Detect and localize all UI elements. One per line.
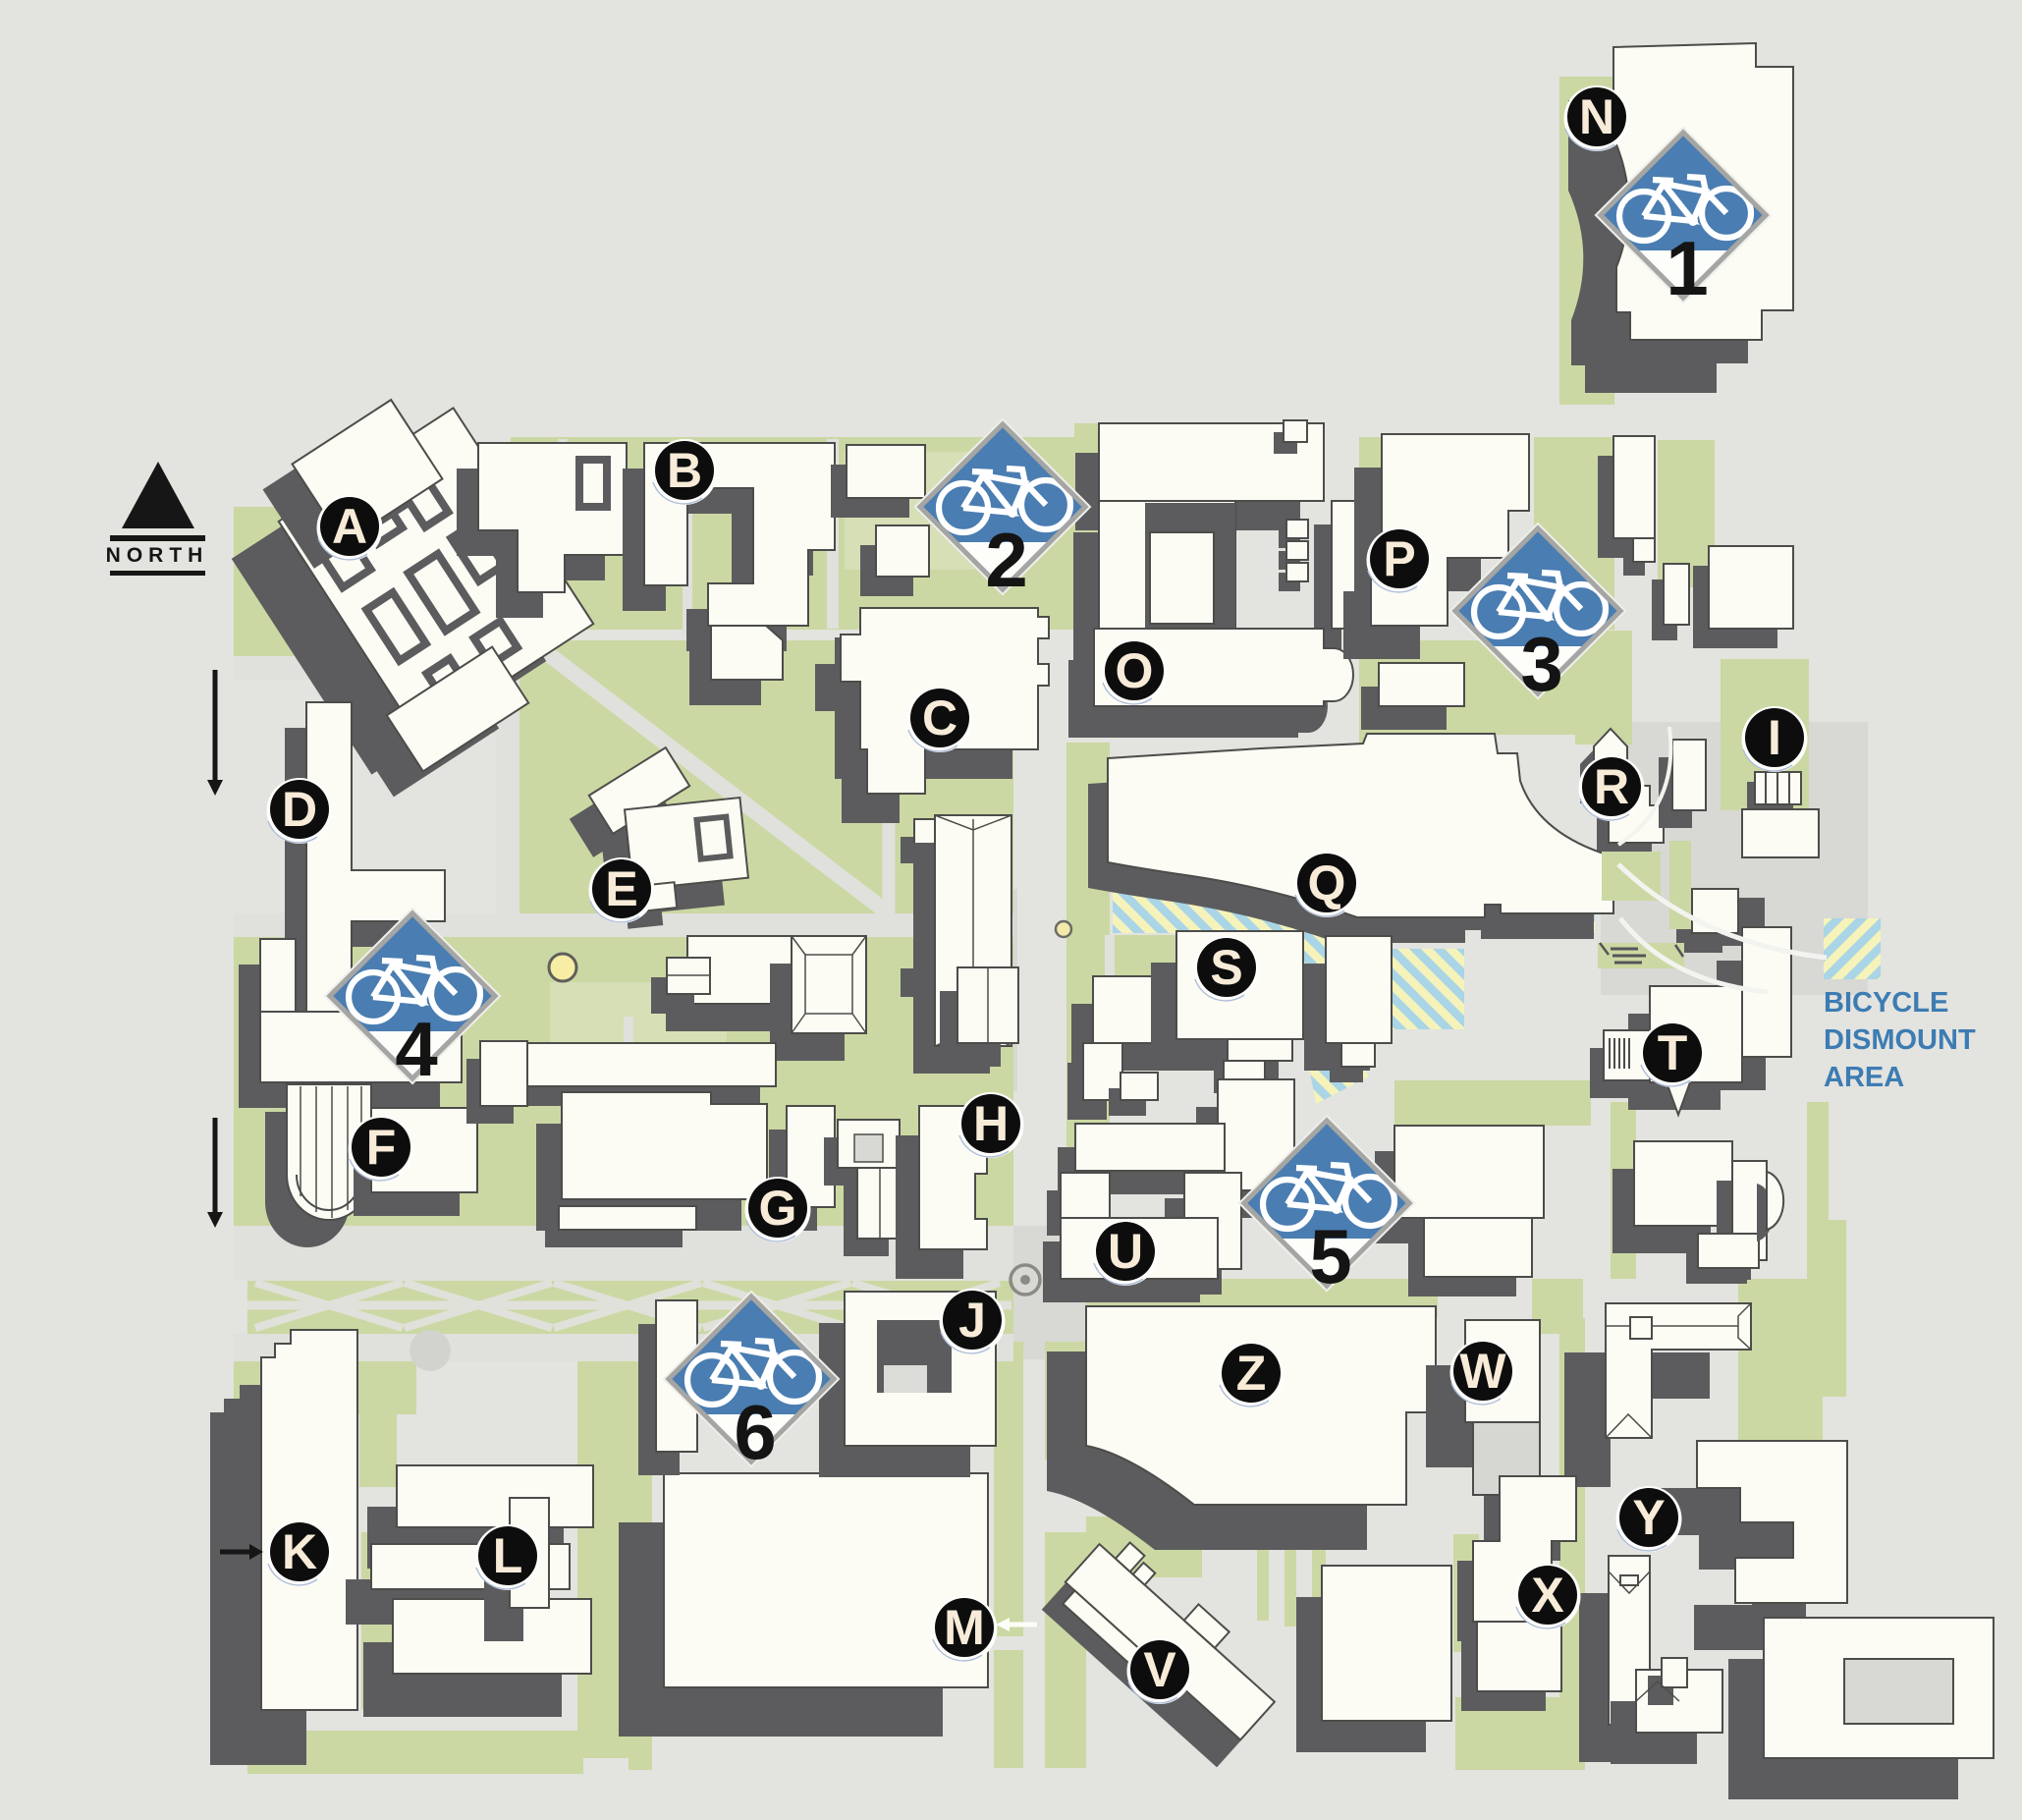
- svg-text:1: 1: [1666, 225, 1708, 311]
- svg-text:NORTH: NORTH: [106, 544, 209, 567]
- svg-text:6: 6: [734, 1389, 776, 1475]
- svg-text:Y: Y: [1632, 1490, 1665, 1545]
- svg-text:S: S: [1210, 940, 1242, 995]
- svg-text:P: P: [1383, 531, 1415, 586]
- svg-text:V: V: [1143, 1642, 1176, 1697]
- svg-text:I: I: [1768, 710, 1781, 765]
- svg-text:AREA: AREA: [1824, 1062, 1904, 1093]
- svg-text:K: K: [282, 1524, 317, 1579]
- svg-text:T: T: [1658, 1025, 1688, 1080]
- svg-text:3: 3: [1520, 621, 1562, 707]
- svg-text:R: R: [1594, 759, 1629, 814]
- svg-text:W: W: [1459, 1344, 1506, 1399]
- svg-text:Z: Z: [1236, 1346, 1267, 1401]
- svg-text:J: J: [958, 1293, 986, 1348]
- svg-text:BICYCLE: BICYCLE: [1824, 987, 1948, 1019]
- svg-text:5: 5: [1309, 1213, 1351, 1299]
- svg-text:F: F: [366, 1120, 397, 1175]
- svg-text:X: X: [1531, 1568, 1563, 1623]
- svg-text:4: 4: [395, 1006, 437, 1092]
- svg-text:B: B: [667, 443, 702, 498]
- svg-text:O: O: [1116, 643, 1154, 698]
- svg-text:G: G: [759, 1181, 797, 1236]
- svg-text:C: C: [922, 690, 957, 745]
- svg-text:DISMOUNT: DISMOUNT: [1824, 1024, 1976, 1056]
- svg-text:Q: Q: [1308, 855, 1346, 910]
- svg-text:H: H: [973, 1096, 1009, 1151]
- svg-text:M: M: [944, 1600, 985, 1655]
- svg-text:L: L: [493, 1528, 523, 1583]
- svg-text:E: E: [605, 861, 637, 916]
- svg-text:U: U: [1108, 1224, 1143, 1279]
- svg-text:A: A: [332, 499, 367, 554]
- svg-text:2: 2: [985, 517, 1027, 603]
- svg-text:N: N: [1579, 89, 1614, 144]
- svg-text:D: D: [282, 782, 317, 837]
